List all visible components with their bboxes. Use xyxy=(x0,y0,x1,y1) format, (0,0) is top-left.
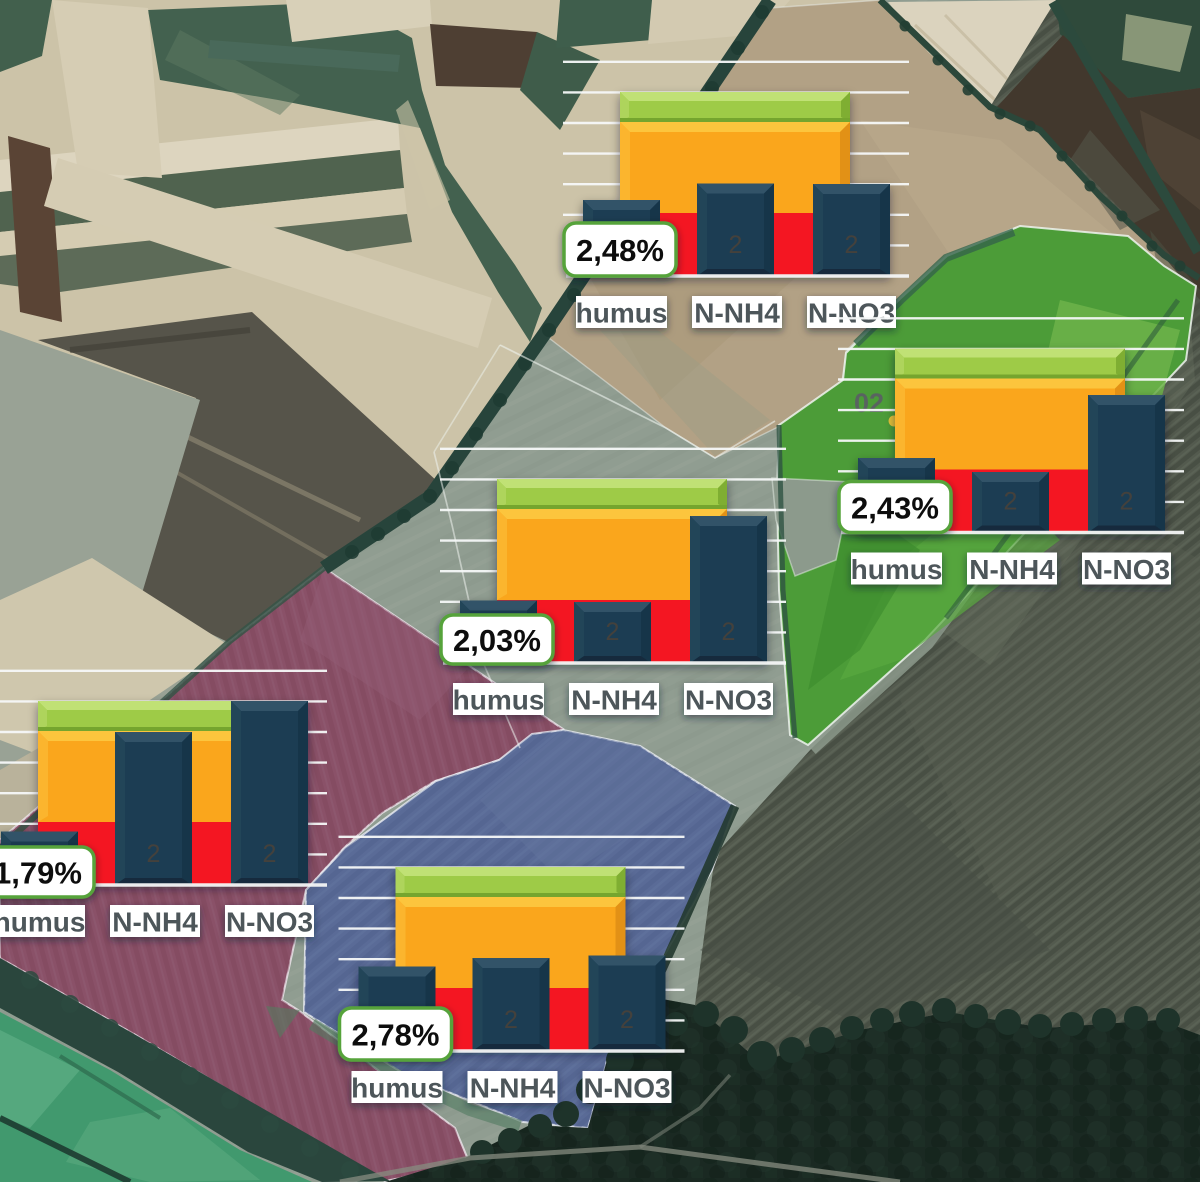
svg-text:2,78%: 2,78% xyxy=(352,1018,440,1053)
svg-text:N-NO3: N-NO3 xyxy=(583,1073,670,1104)
svg-text:2,03%: 2,03% xyxy=(453,623,541,658)
svg-text:N-NO3: N-NO3 xyxy=(226,907,313,938)
svg-text:2: 2 xyxy=(845,231,859,259)
svg-text:2: 2 xyxy=(729,231,743,259)
svg-text:2: 2 xyxy=(147,840,161,868)
svg-text:humus: humus xyxy=(576,298,668,329)
svg-text:N-NH4: N-NH4 xyxy=(571,685,657,716)
svg-text:2: 2 xyxy=(620,1006,634,1034)
svg-text:N-NH4: N-NH4 xyxy=(470,1073,556,1104)
svg-text:humus: humus xyxy=(851,554,943,585)
svg-text:N-NH4: N-NH4 xyxy=(112,907,198,938)
svg-text:N-NO3: N-NO3 xyxy=(808,298,895,329)
svg-text:humus: humus xyxy=(351,1073,443,1104)
svg-text:humus: humus xyxy=(453,685,545,716)
svg-text:N-NO3: N-NO3 xyxy=(685,685,772,716)
svg-text:humus: humus xyxy=(0,907,85,938)
svg-text:2: 2 xyxy=(504,1006,518,1034)
svg-text:2: 2 xyxy=(722,618,736,646)
svg-text:1,79%: 1,79% xyxy=(0,856,82,891)
svg-text:N-NH4: N-NH4 xyxy=(694,298,780,329)
svg-text:2: 2 xyxy=(263,840,277,868)
svg-text:2: 2 xyxy=(1120,488,1134,516)
svg-text:2,48%: 2,48% xyxy=(576,233,664,268)
svg-text:N-NH4: N-NH4 xyxy=(969,554,1055,585)
svg-text:2,43%: 2,43% xyxy=(851,491,939,526)
svg-text:2: 2 xyxy=(606,618,620,646)
svg-text:N-NO3: N-NO3 xyxy=(1083,554,1170,585)
svg-text:02: 02 xyxy=(854,388,884,418)
svg-text:2: 2 xyxy=(1004,488,1018,516)
